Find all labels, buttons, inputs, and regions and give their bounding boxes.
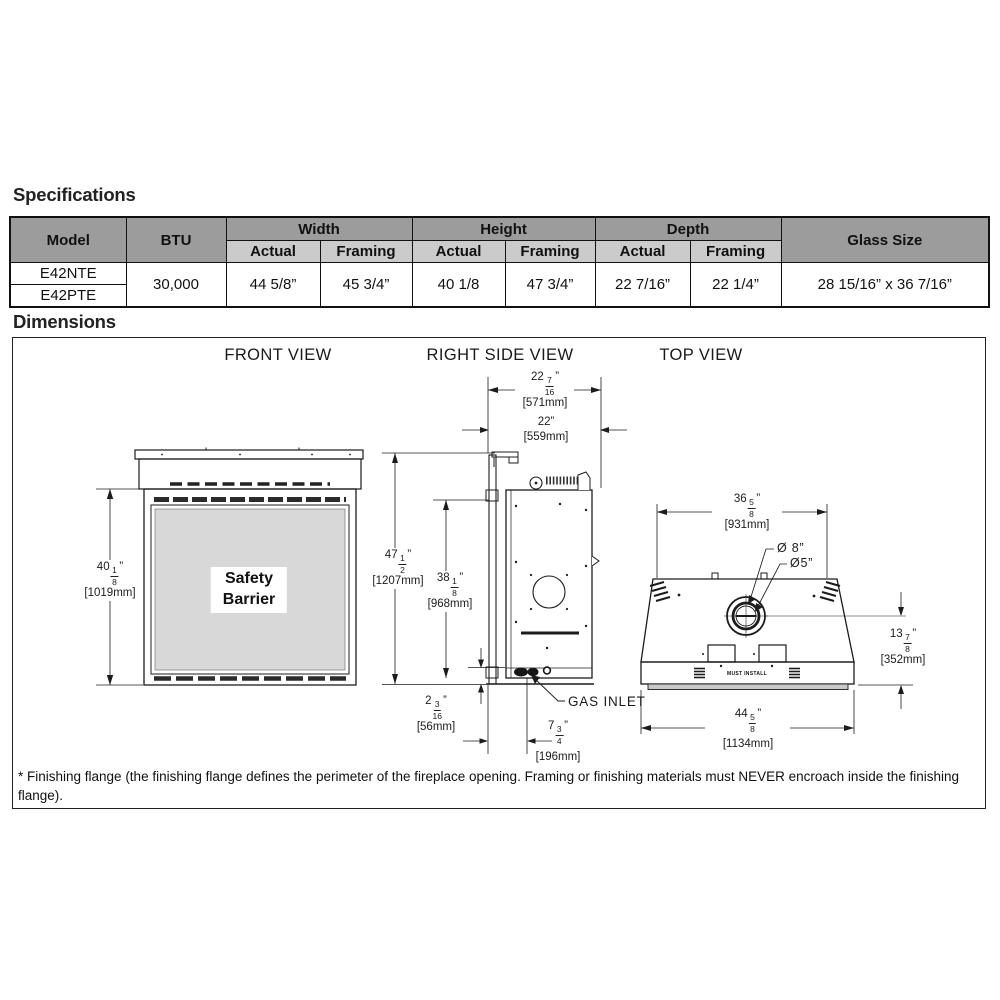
btu-value: 30,000: [126, 263, 226, 308]
dim-flue-center-to-front: 1378” [352mm]: [881, 627, 926, 668]
specifications-title: Specifications: [13, 184, 136, 206]
front-view-label: FRONT VIEW: [224, 346, 331, 365]
dim-top-rear-width: 3658” [931mm]: [725, 492, 770, 533]
gas-inlet-callout: GAS INLET: [568, 694, 646, 709]
top-view-label: TOP VIEW: [659, 346, 742, 365]
width-actual-value: 44 5/8”: [226, 263, 320, 308]
col-header-width: Width: [226, 217, 412, 241]
dimensions-title: Dimensions: [13, 311, 116, 333]
depth-actual-value: 22 7/16”: [595, 263, 690, 308]
dim-gas-inlet-setback: 734” [196mm]: [536, 719, 581, 765]
finishing-flange-footnote: * Finishing flange (the finishing flange…: [18, 768, 966, 806]
col-header-height: Height: [412, 217, 595, 241]
sub-header-depth-framing: Framing: [690, 241, 781, 263]
depth-framing-value: 22 1/4”: [690, 263, 781, 308]
safety-barrier-label: Safety Barrier: [211, 567, 287, 613]
dim-depth-actual: 22” [559mm]: [524, 415, 569, 445]
model-e42nte: E42NTE: [10, 263, 126, 285]
col-header-glass-size: Glass Size: [781, 217, 989, 263]
must-install-label: MUST INSTALL: [727, 671, 767, 677]
dimensions-drawing-box: [12, 337, 986, 809]
col-header-btu: BTU: [126, 217, 226, 263]
sub-header-width-framing: Framing: [320, 241, 412, 263]
dim-side-opening-height: 3818” [968mm]: [425, 571, 476, 612]
table-row-e42nte: E42NTE 30,000 44 5/8” 45 3/4” 40 1/8 47 …: [10, 263, 989, 285]
model-e42pte: E42PTE: [10, 285, 126, 308]
glass-size-value: 28 15/16” x 36 7/16”: [781, 263, 989, 308]
col-header-depth: Depth: [595, 217, 781, 241]
sub-header-height-framing: Framing: [505, 241, 595, 263]
spec-sheet-page: Specifications Model BTU Width Height De…: [0, 0, 1000, 1000]
right-side-view-label: RIGHT SIDE VIEW: [427, 346, 574, 365]
flue-inner-diameter-callout: Ø5”: [790, 556, 813, 570]
dim-front-width: 4458” [1134mm]: [723, 707, 773, 752]
table-header-row-groups: Model BTU Width Height Depth Glass Size: [10, 217, 989, 241]
dim-front-height: 4018” [1019mm]: [81, 560, 138, 601]
width-framing-value: 45 3/4”: [320, 263, 412, 308]
dim-depth-framing: 22716” [571mm]: [523, 370, 568, 411]
specifications-table: Model BTU Width Height Depth Glass Size …: [9, 216, 990, 308]
sub-header-height-actual: Actual: [412, 241, 505, 263]
sub-header-width-actual: Actual: [226, 241, 320, 263]
col-header-model: Model: [10, 217, 126, 263]
sub-header-depth-actual: Actual: [595, 241, 690, 263]
height-actual-value: 40 1/8: [412, 263, 505, 308]
height-framing-value: 47 3/4”: [505, 263, 595, 308]
dim-side-total-height: 4712” [1207mm]: [369, 548, 426, 589]
dim-gas-inlet-height: 2316” [56mm]: [417, 694, 455, 735]
flue-outer-diameter-callout: Ø 8”: [777, 541, 805, 555]
